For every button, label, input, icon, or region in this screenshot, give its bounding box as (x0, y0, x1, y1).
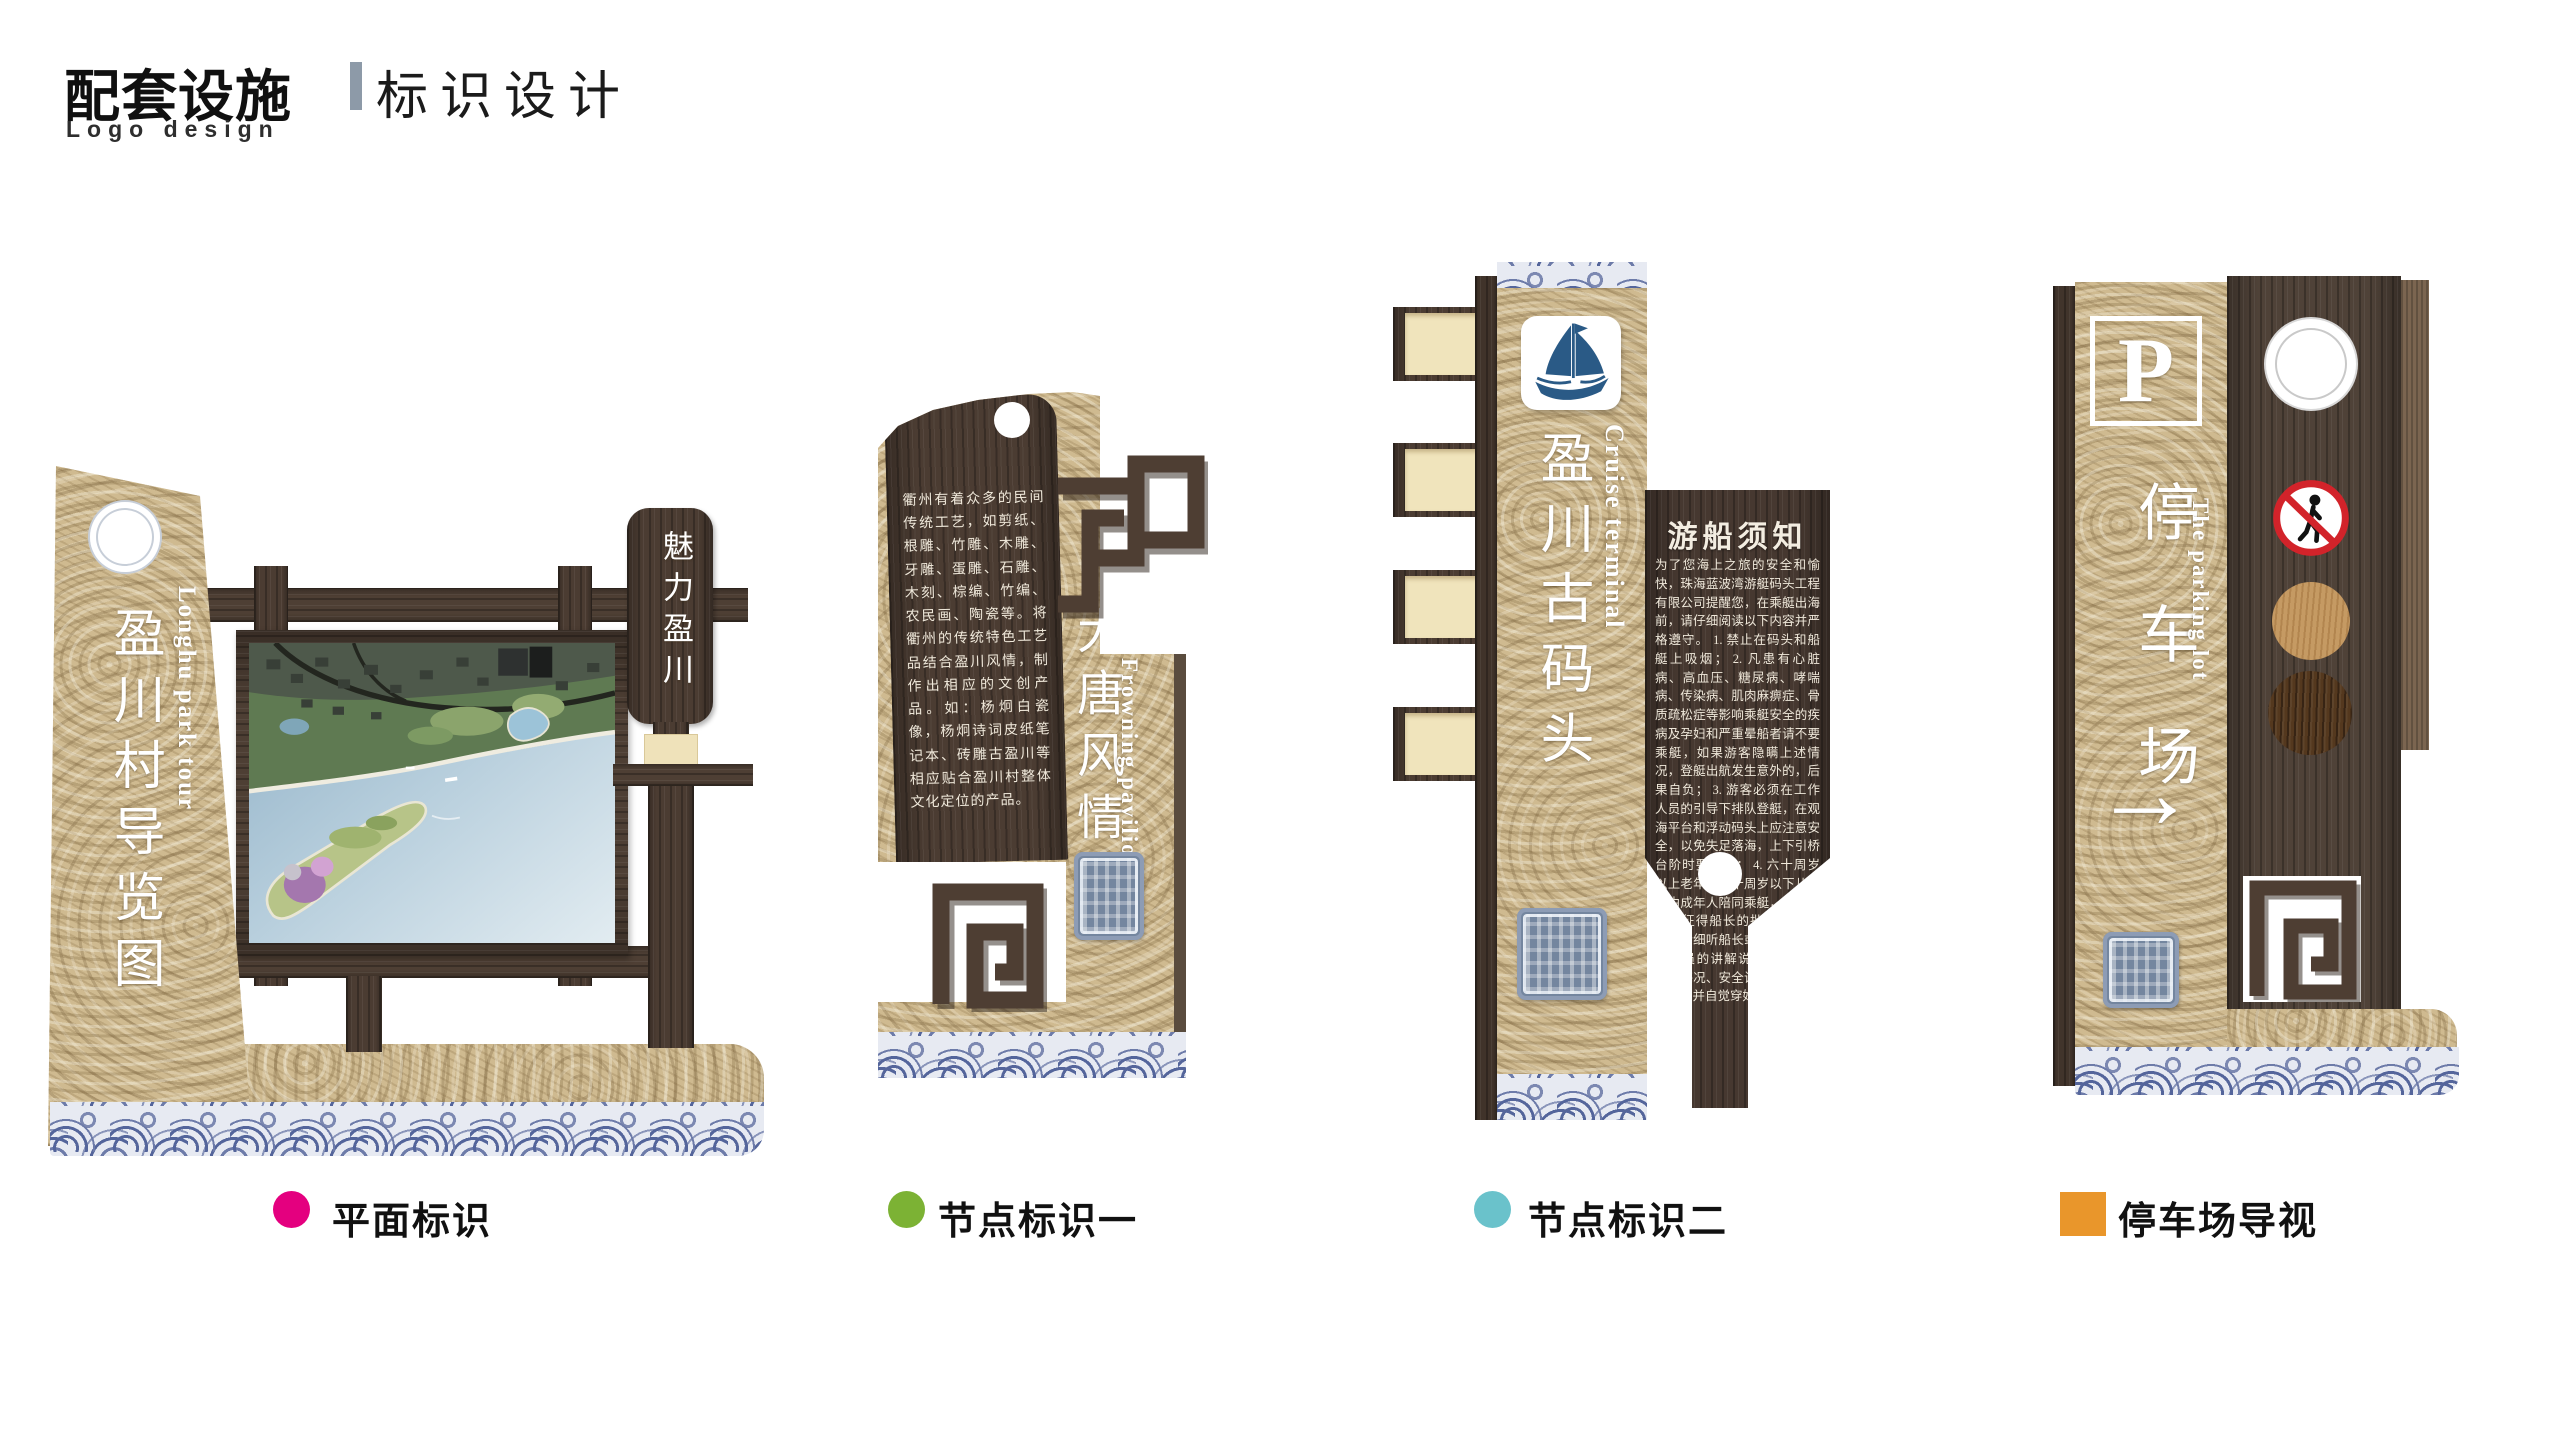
sign-pillar: 盈川村导览图 Longhu park tour (48, 458, 253, 1146)
legend-swatch (1474, 1191, 1511, 1228)
intro-text: 衢州有着众多的民间传统工艺，如剪纸、根雕、竹雕、木雕、牙雕、蛋雕、石雕、木刻、棕… (902, 486, 1052, 815)
notice-body: 为了您海上之旅的安全和愉快，珠海蓝波湾游艇码头工程有限公司提醒您，在乘艇出海前，… (1655, 556, 1820, 1006)
pillar-title: 盈川村导览图 (96, 606, 171, 1106)
direction-arrow: → (2085, 734, 2205, 853)
fret-cutout (2243, 876, 2361, 1002)
pillar-circle-ornament (90, 502, 160, 572)
sailboat-icon (1521, 316, 1621, 410)
fret-pattern-icon (1048, 452, 1208, 642)
parking-p-letter: P (2095, 317, 2197, 423)
darkwood-disc (2268, 671, 2352, 755)
node-sign-1: 衢州有着众多的民间传统工艺，如剪纸、根雕、竹雕、木雕、牙雕、蛋雕、石雕、木刻、棕… (878, 386, 1223, 1121)
sign-lower-post (346, 976, 382, 1052)
fret-spiral-icon (2243, 876, 2361, 1002)
wave-band (2075, 1047, 2459, 1095)
page-title-secondary: 标识设计 (376, 54, 632, 129)
parking-sign: P 停车场 The parking lot → (2053, 276, 2465, 1118)
map-frame (236, 630, 628, 956)
wave-band-top (1497, 262, 1647, 288)
wave-band (50, 1102, 764, 1156)
page-subtitle: Logo design (66, 116, 280, 143)
dark-panel (2227, 276, 2401, 1011)
legend-label: 节点标识一 (938, 1190, 1138, 1245)
legend-swatch (273, 1191, 310, 1228)
terminal-title: 盈川古码头 (1523, 430, 1602, 860)
notice-panel: 游船须知 为了您海上之旅的安全和愉快，珠海蓝波湾游艇码头工程有限公司提醒您，在乘… (1645, 490, 1830, 1108)
terminal-title-en: Cruise terminal (1599, 424, 1629, 784)
notice-title: 游船须知 (1645, 512, 1830, 556)
panel-light-edge (2401, 280, 2429, 750)
logo-tile (1521, 316, 1621, 410)
title-separator (350, 62, 362, 110)
panel-circle-hole (1698, 852, 1742, 896)
plaque-cream-block (644, 734, 698, 766)
map-sign: 盈川村导览图 Longhu park tour 魅力盈川 (48, 450, 818, 1165)
parking-p-box: P (2090, 316, 2202, 426)
sign-base (2227, 1009, 2457, 1049)
bracket-face (1405, 449, 1479, 511)
seal-stamp-icon (2103, 932, 2179, 1008)
plaque: 魅力盈川 (627, 508, 713, 724)
bracket-face (1405, 313, 1479, 375)
no-pedestrian-icon (2272, 479, 2350, 557)
sign-pillar: 盈川古码头 Cruise terminal (1497, 262, 1647, 1120)
legend-label: 停车场导视 (2118, 1190, 2318, 1245)
fret-spiral-icon (923, 878, 1047, 1012)
pillar-title-en: Longhu park tour (172, 586, 200, 946)
seal-stamp-icon (1074, 852, 1144, 940)
node-sign-2: 盈川古码头 Cruise terminal 游船须知 为了您海上之旅的安全和愉快… (1393, 262, 1838, 1124)
ring-ornament (2266, 319, 2356, 409)
intro-panel: 衢州有着众多的民间传统工艺，如剪纸、根雕、竹雕、木雕、牙雕、蛋雕、石雕、木刻、棕… (884, 394, 1068, 864)
rope-panel: P 停车场 The parking lot → (2075, 282, 2227, 1088)
panel-side-edge (2053, 286, 2075, 1086)
park-map-image (249, 643, 615, 943)
plaque-text: 魅力盈川 (653, 530, 698, 706)
legend-swatch (2060, 1192, 2106, 1236)
pillar-side-edge (1475, 276, 1497, 1120)
panel-circle-hole (994, 402, 1030, 438)
bracket-face (1405, 713, 1479, 775)
legend-swatch (888, 1191, 925, 1228)
body-side-edge (1174, 654, 1186, 1078)
wave-band (1497, 1074, 1647, 1120)
lightwood-disc (2272, 582, 2350, 660)
plaque-post (648, 786, 694, 1048)
seal-stamp-icon (1517, 908, 1607, 1000)
plaque-bracket (613, 764, 753, 786)
wave-band (878, 1032, 1186, 1078)
bracket-face (1405, 576, 1479, 638)
legend-label: 平面标识 (332, 1190, 492, 1245)
page-header: 配套设施 标识设计 Logo design (64, 48, 964, 168)
design-board: 配套设施 标识设计 Logo design (0, 0, 2560, 1448)
legend-label: 节点标识二 (1528, 1190, 1728, 1245)
